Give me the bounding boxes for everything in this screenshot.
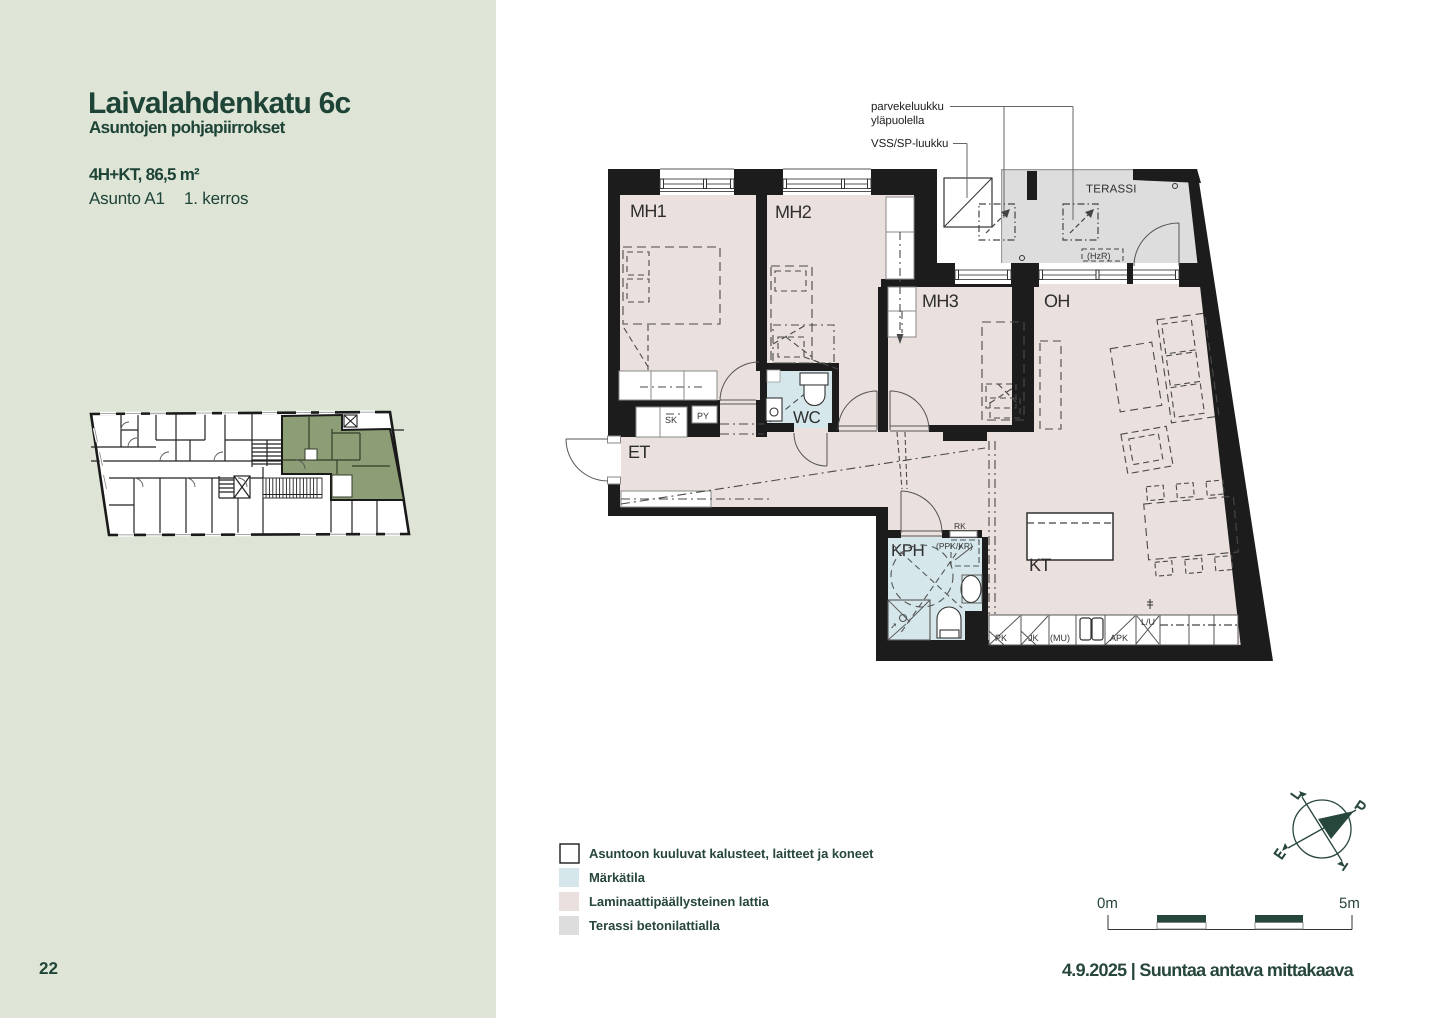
svg-text:KT: KT — [1029, 555, 1051, 575]
svg-text:parvekeluukku: parvekeluukku — [871, 101, 944, 113]
svg-text:L/U: L/U — [1141, 617, 1155, 627]
svg-text:TERASSI: TERASSI — [1086, 184, 1137, 196]
svg-text:(PPK/KR): (PPK/KR) — [936, 541, 973, 551]
svg-text:1. kerros: 1. kerros — [184, 189, 248, 208]
svg-text:(HzR): (HzR) — [1087, 251, 1111, 261]
svg-text:APK: APK — [1110, 633, 1128, 643]
svg-text:yläpuolella: yläpuolella — [871, 115, 925, 127]
svg-text:(MU): (MU) — [1050, 633, 1070, 643]
svg-text:OH: OH — [1044, 291, 1070, 311]
svg-text:4.9.2025 | Suuntaa antava mitt: 4.9.2025 | Suuntaa antava mittakaava — [1062, 960, 1355, 980]
svg-text:MH3: MH3 — [922, 291, 959, 311]
svg-text:Asunto A1: Asunto A1 — [89, 189, 165, 208]
svg-text:4H+KT, 86,5 m²: 4H+KT, 86,5 m² — [89, 165, 200, 184]
svg-text:Märkätila: Märkätila — [589, 870, 646, 885]
svg-text:WC: WC — [793, 408, 820, 427]
svg-text:KPH: KPH — [891, 541, 924, 560]
svg-text:MH2: MH2 — [775, 202, 812, 222]
svg-text:5m: 5m — [1339, 895, 1360, 912]
svg-text:ET: ET — [628, 442, 650, 462]
svg-text:RK: RK — [954, 521, 966, 531]
svg-text:Asuntojen pohjapiirrokset: Asuntojen pohjapiirrokset — [89, 118, 286, 137]
svg-text:Asuntoon kuuluvat kalusteet, l: Asuntoon kuuluvat kalusteet, laitteet ja… — [589, 846, 874, 861]
svg-text:Terassi betonilattialla: Terassi betonilattialla — [589, 918, 721, 933]
svg-text:Laivalahdenkatu 6c: Laivalahdenkatu 6c — [88, 87, 350, 120]
svg-text:Laminaattipäällysteinen lattia: Laminaattipäällysteinen lattia — [589, 894, 770, 909]
svg-text:VSS/SP-luukku: VSS/SP-luukku — [871, 138, 948, 150]
svg-text:JK: JK — [1028, 633, 1039, 643]
svg-text:0m: 0m — [1097, 895, 1118, 912]
svg-text:MH1: MH1 — [630, 201, 667, 221]
svg-text:22: 22 — [39, 959, 58, 978]
svg-text:PK: PK — [995, 633, 1007, 643]
svg-text:SK: SK — [665, 415, 677, 425]
svg-text:PY: PY — [697, 411, 709, 421]
